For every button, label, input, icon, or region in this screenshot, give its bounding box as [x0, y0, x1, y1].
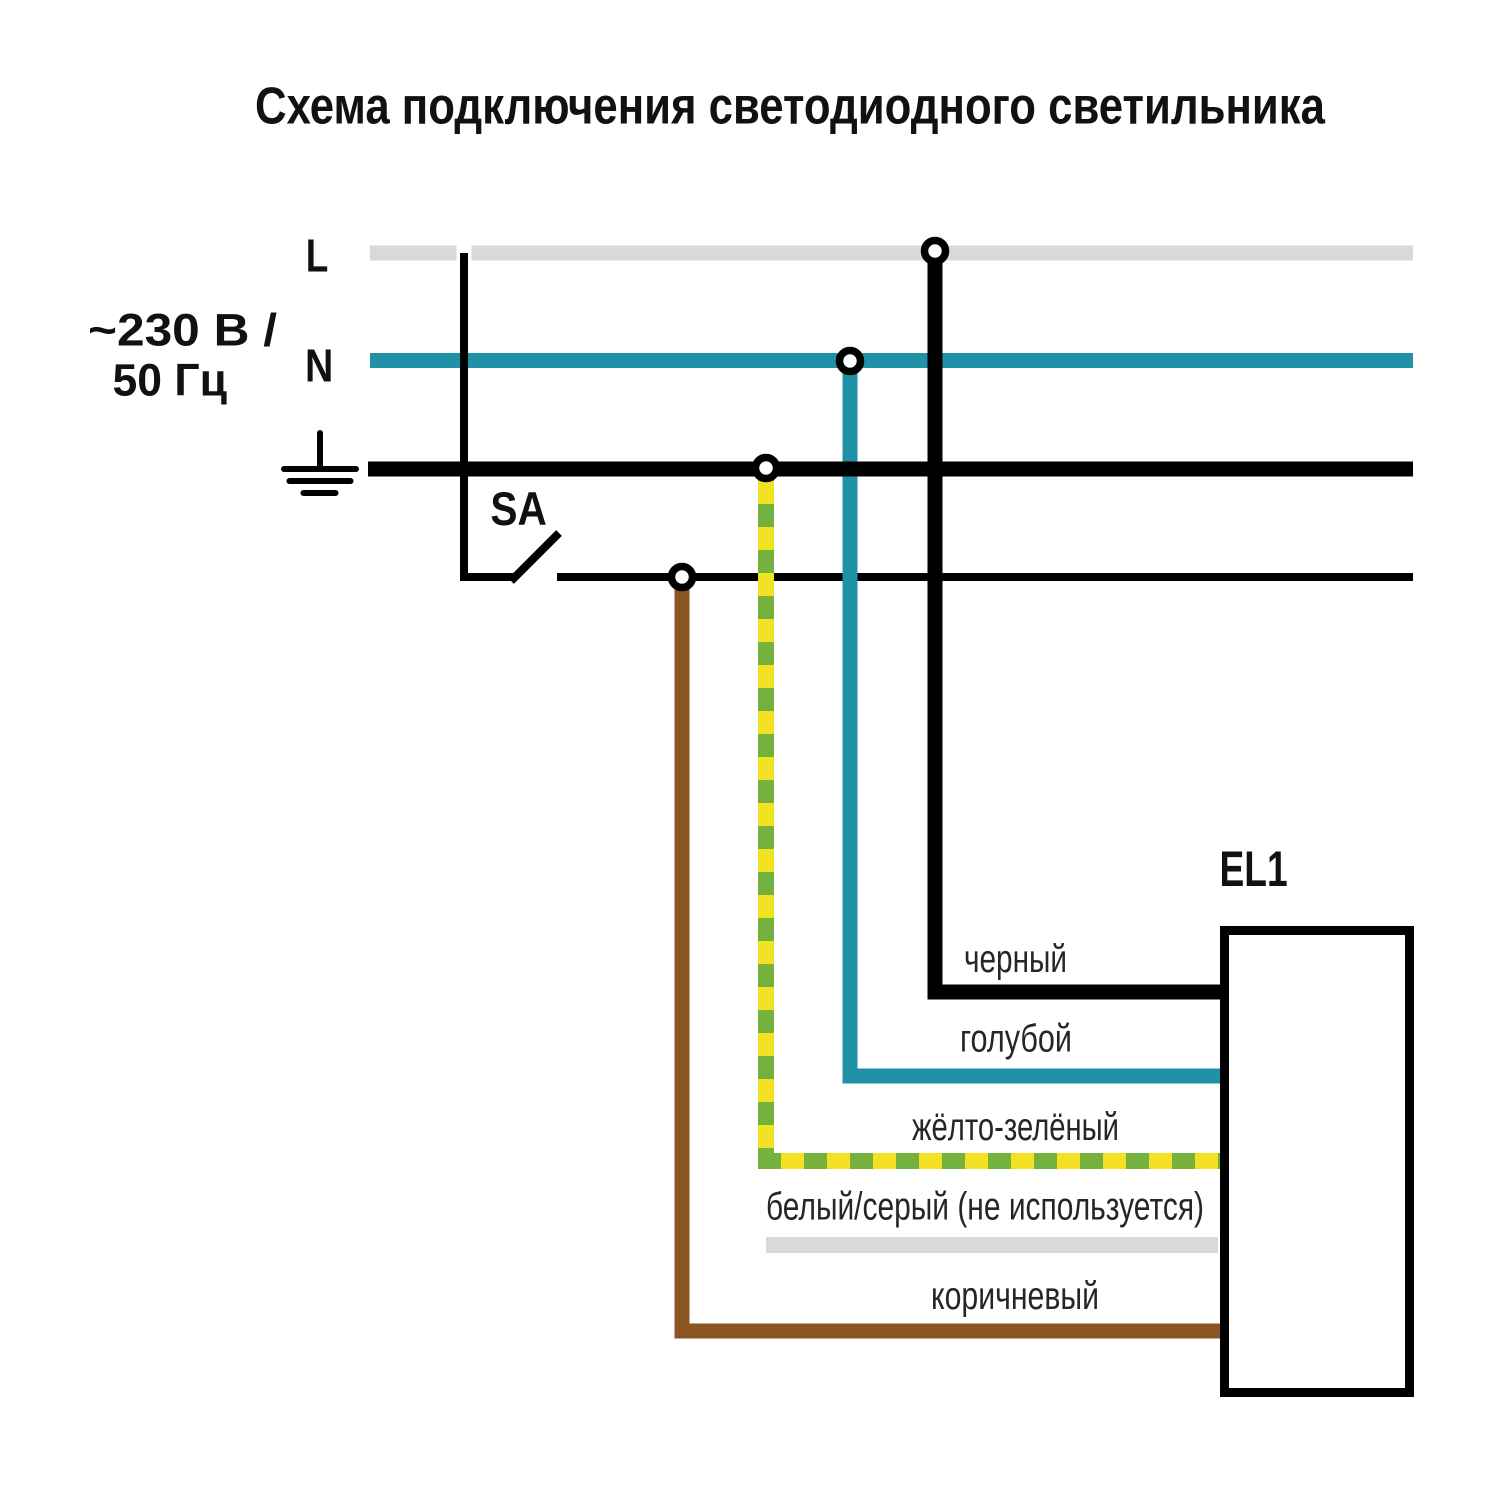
svg-text:SA: SA: [490, 482, 546, 535]
svg-text:жёлто-зелёный: жёлто-зелёный: [912, 1106, 1119, 1149]
svg-text:белый/серый (не используется): белый/серый (не используется): [766, 1186, 1204, 1229]
svg-text:черный: черный: [964, 938, 1067, 981]
svg-text:EL1: EL1: [1220, 841, 1288, 897]
svg-text:N: N: [305, 340, 333, 392]
svg-text:Схема подключения светодиодног: Схема подключения светодиодного светильн…: [255, 77, 1325, 135]
svg-text:голубой: голубой: [960, 1018, 1072, 1061]
svg-text:~230 В /: ~230 В /: [88, 305, 278, 356]
svg-text:L: L: [306, 230, 329, 282]
svg-text:50 Гц: 50 Гц: [113, 355, 228, 406]
svg-text:коричневый: коричневый: [931, 1275, 1099, 1318]
